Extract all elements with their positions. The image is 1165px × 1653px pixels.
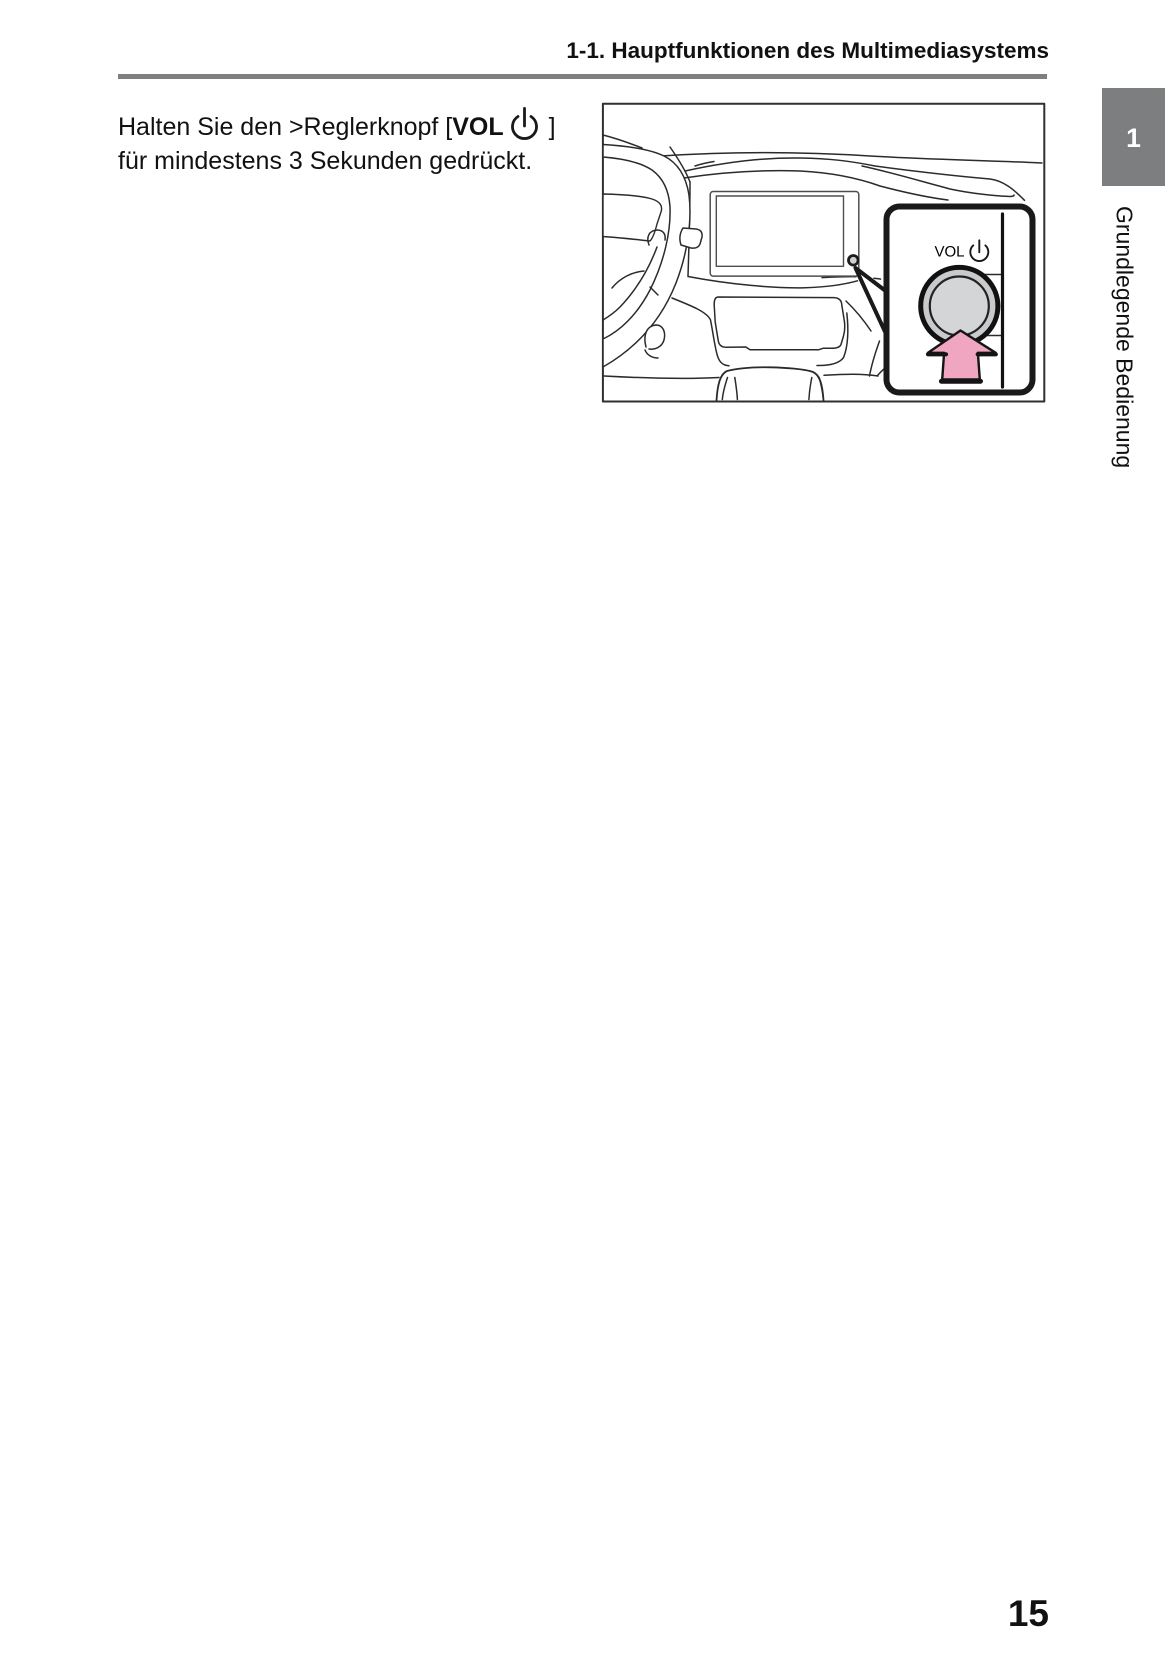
svg-text:VOL: VOL [935,243,965,260]
